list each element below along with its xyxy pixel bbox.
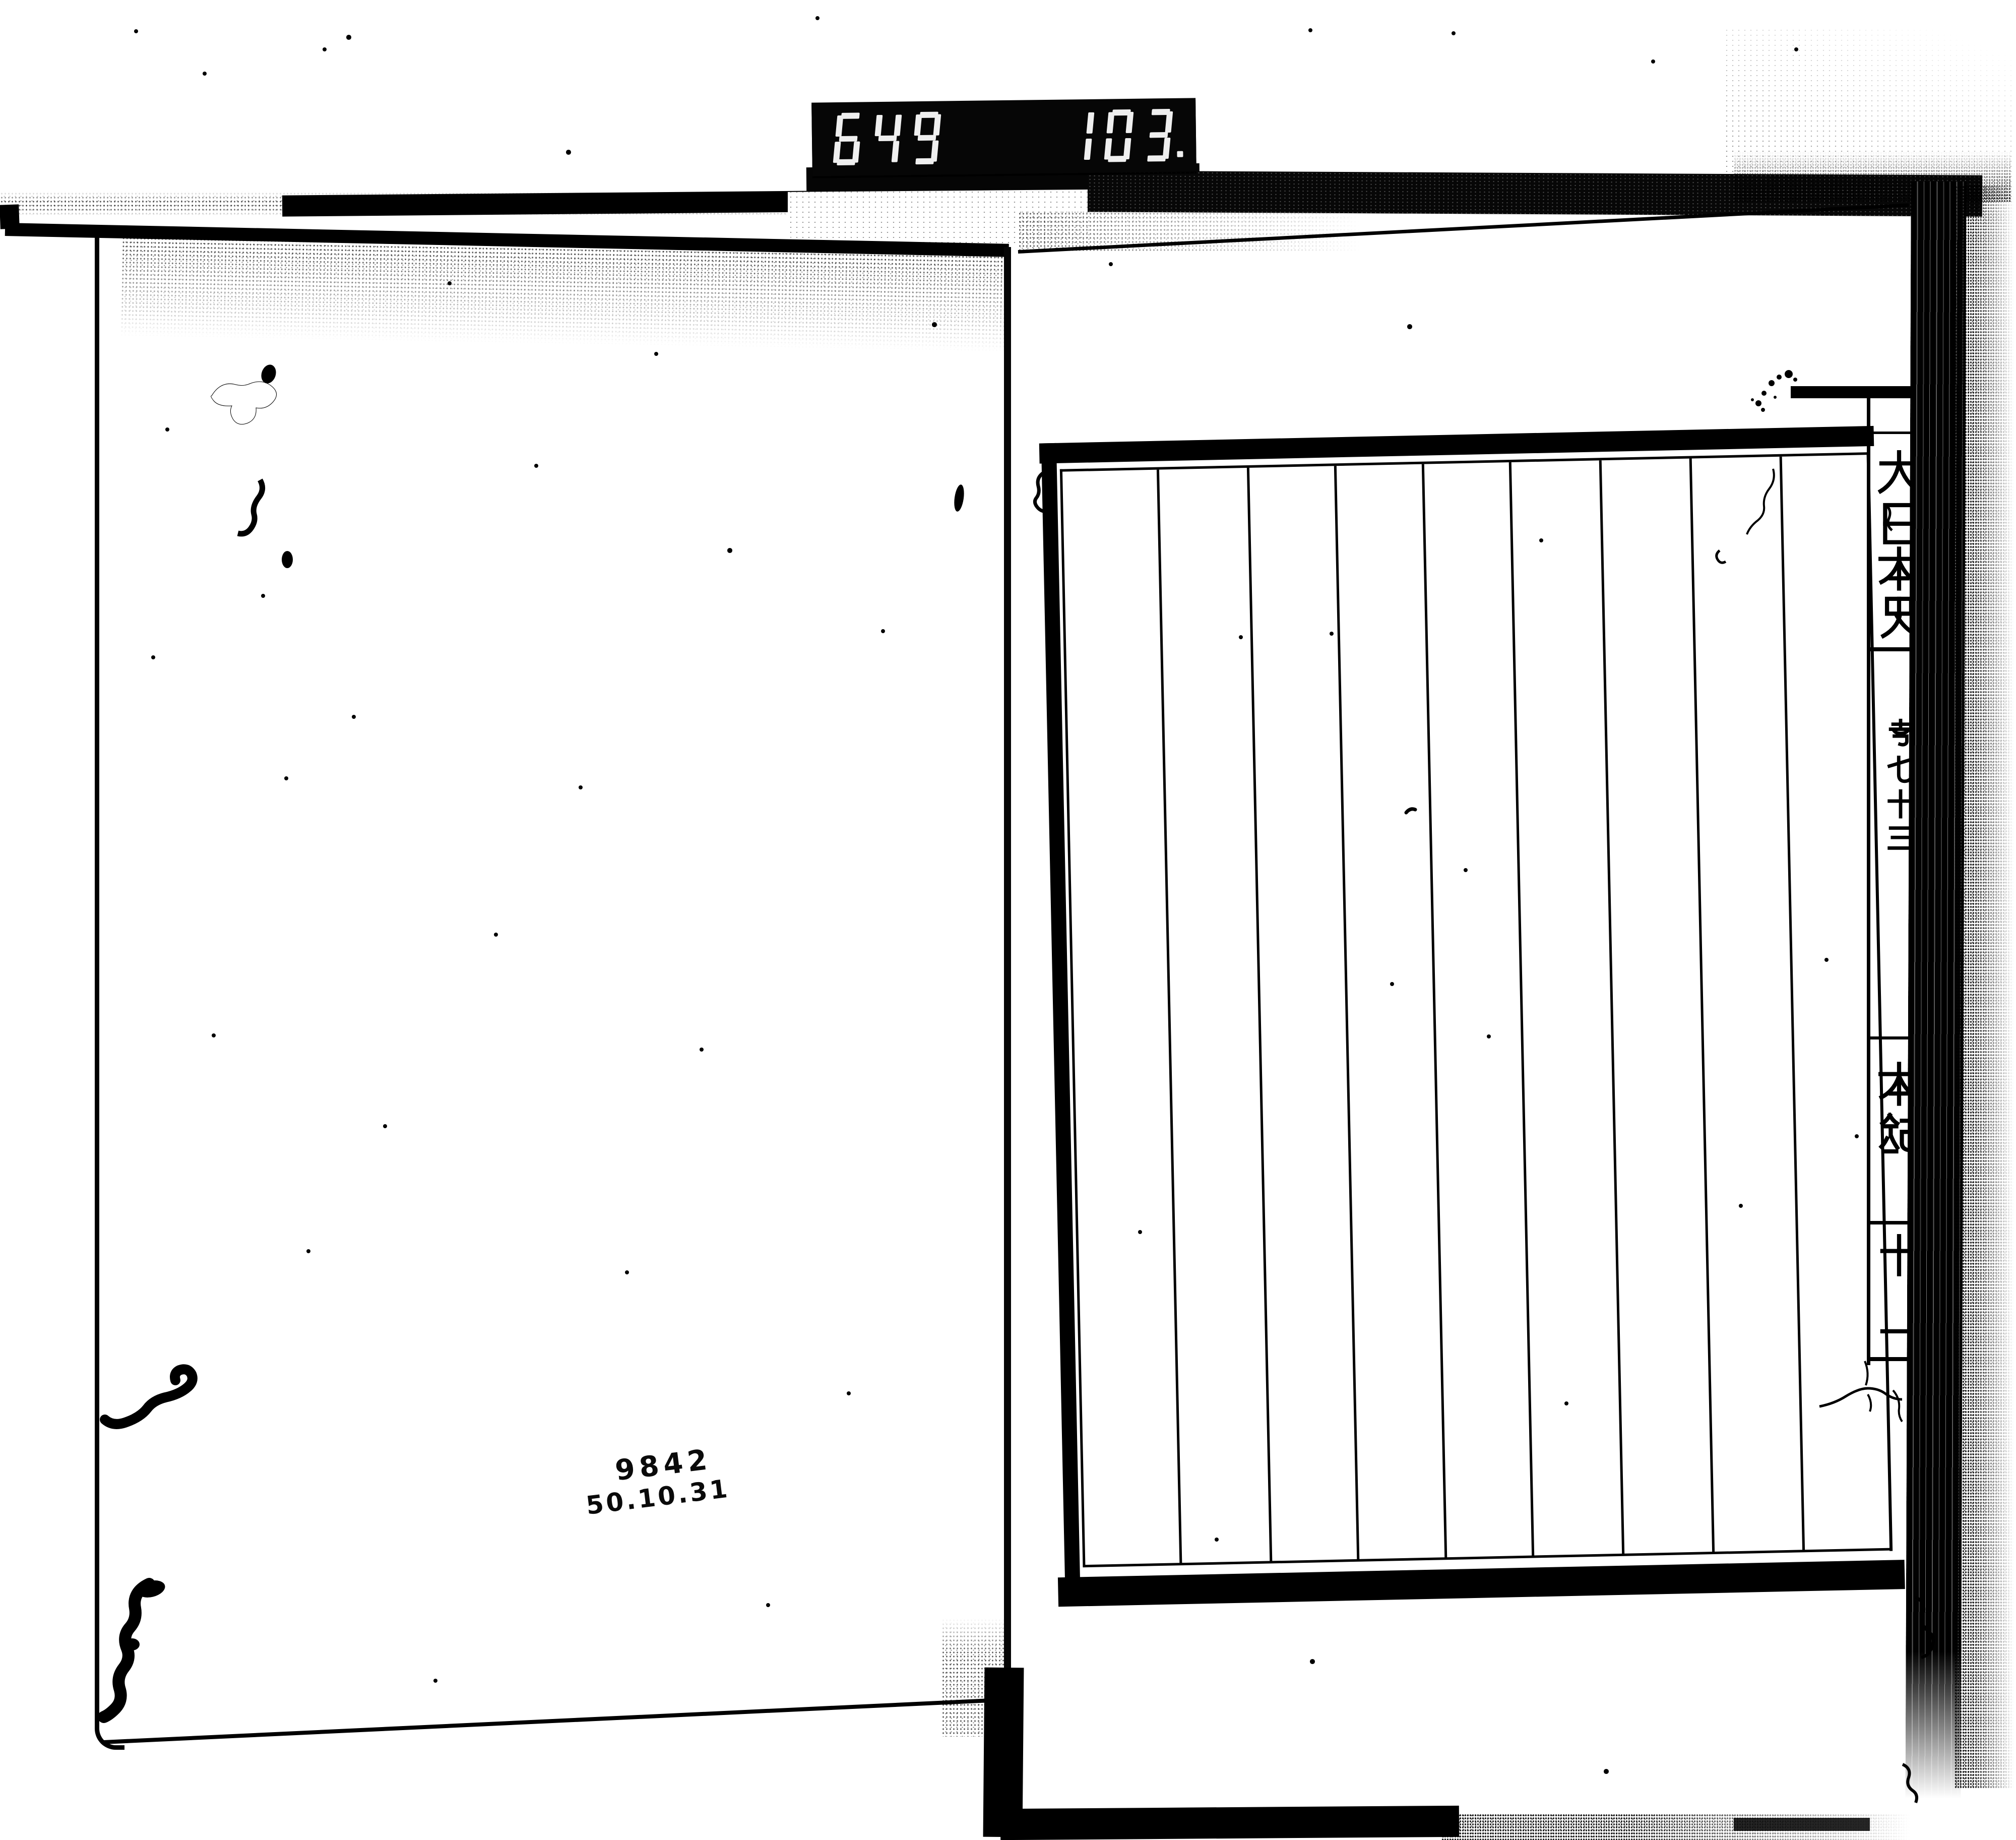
counter-digit bbox=[1143, 109, 1173, 162]
book-top-edge-fringe bbox=[0, 192, 786, 216]
digital-counter bbox=[811, 98, 1196, 176]
spine-gutter-line bbox=[1004, 247, 1011, 1674]
left-page-left-edge bbox=[95, 231, 99, 1718]
column-rule-line bbox=[1599, 460, 1624, 1554]
frame-border-bottom bbox=[1058, 1560, 1905, 1607]
bottom-edge-band bbox=[1000, 1806, 1459, 1840]
right-page-top-speckle bbox=[1018, 212, 1361, 251]
ink-stain-bottom-left bbox=[104, 1584, 149, 1717]
crack-branch-2 bbox=[1893, 1390, 1902, 1422]
column-rule-line bbox=[1422, 464, 1447, 1558]
column-rule-line bbox=[1334, 466, 1359, 1560]
bottom-edge-dark-streak bbox=[1734, 1818, 1870, 1831]
counter-left-digits bbox=[835, 112, 939, 166]
image-left-margin-mark bbox=[0, 204, 20, 229]
fore-edge-speckle bbox=[1955, 186, 2014, 1789]
dash-blob-gutter bbox=[953, 484, 965, 512]
left-page-bottom-edge bbox=[104, 1698, 990, 1744]
left-page-corner-curve bbox=[95, 1712, 124, 1750]
ink-dot-left bbox=[282, 551, 293, 568]
spine-box-line bbox=[1867, 387, 1915, 397]
column-rule-line bbox=[1247, 468, 1272, 1562]
dust-specks bbox=[0, 0, 2, 2]
column-rule-line bbox=[1780, 457, 1805, 1551]
counter-decimal-dot bbox=[1177, 151, 1183, 157]
spine-box-line bbox=[1871, 432, 1915, 434]
ink-stain-bottom-left-blob bbox=[136, 1578, 167, 1601]
frame-border-left bbox=[1041, 443, 1081, 1587]
left-page-top-shadow bbox=[120, 228, 1009, 352]
counter-digit bbox=[833, 112, 863, 165]
ink-blob-upper-left bbox=[211, 382, 277, 424]
ink-scurve-left bbox=[238, 480, 263, 534]
counter-digit bbox=[872, 112, 902, 165]
scanned-book-spread: 9842 50.10.31 bbox=[0, 0, 2016, 1840]
counter-right-digits bbox=[1066, 109, 1183, 163]
spine-box-left-line bbox=[1867, 392, 1870, 1365]
spine-box-line bbox=[1867, 647, 1915, 651]
spine-char-title bbox=[1876, 446, 1915, 496]
ink-stain-knot bbox=[124, 1638, 140, 1650]
frame-border-top bbox=[1039, 426, 1874, 464]
counter-digit bbox=[911, 112, 941, 165]
library-date-stamp: 9842 50.10.31 bbox=[581, 1441, 732, 1520]
ink-dot-upper-left bbox=[259, 363, 278, 386]
counter-digit bbox=[1064, 110, 1095, 163]
column-rule-line bbox=[1689, 458, 1715, 1552]
column-rule-line bbox=[1509, 462, 1534, 1556]
column-rule-line bbox=[1157, 470, 1182, 1564]
counter-digit bbox=[1104, 109, 1134, 162]
ink-squiggle-left-edge bbox=[105, 1369, 193, 1424]
ruled-page-frame bbox=[1041, 426, 1896, 1618]
